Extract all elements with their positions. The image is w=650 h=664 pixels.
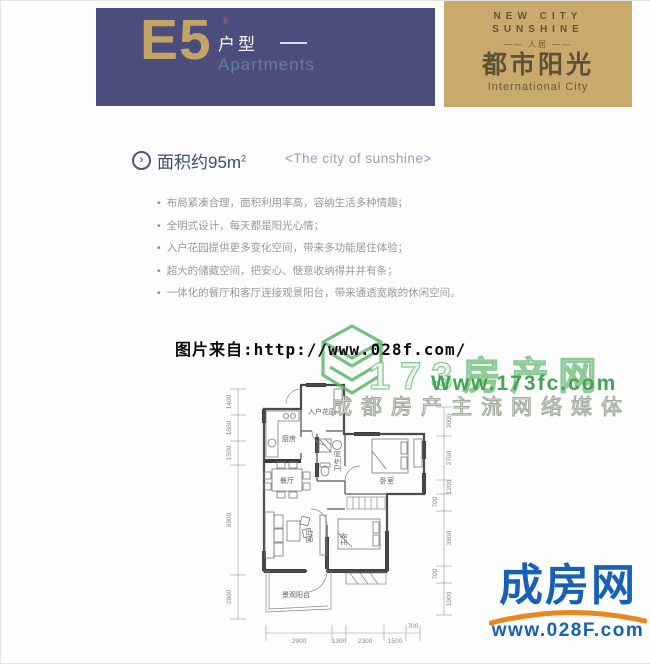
unit-type-label-en: Apartments xyxy=(218,55,315,75)
area-superscript: 2 xyxy=(241,153,246,163)
dim-left-2: 1500 xyxy=(226,445,233,460)
dim-left-3: 6900 xyxy=(226,512,233,527)
dimension-labels: 1400 1600 1500 6900 2800 3000 2700 1200 … xyxy=(226,394,453,645)
feature-bullet: 入户花园提供更多变化空间，带来多功能居住体验； xyxy=(157,237,477,260)
feature-bullet: 超大的储藏空间，把安心、惬意收纳得井井有条； xyxy=(157,260,477,283)
room-label-bathroom: 卫生间 xyxy=(333,451,342,472)
feature-bullet: 布局紧凑合理，面积利用率高，容纳生活多种情趣； xyxy=(157,192,477,215)
chevron-right-circle-icon: › xyxy=(132,151,151,170)
dim-left-0: 1400 xyxy=(226,394,233,409)
brand-name-en: International City xyxy=(444,81,632,93)
decor-dash xyxy=(280,42,307,44)
feature-bullet: 一体化的餐厅和客厅连接观景阳台，带来通透宽敞的休闲空间。 xyxy=(157,282,477,305)
dim-bottom-2: 2300 xyxy=(358,638,373,645)
brand-line3: —— 人居 —— xyxy=(444,39,632,50)
dim-right-1: 2700 xyxy=(446,450,453,465)
photo-source-watermark: 图片来自:http://www.028f.com/ xyxy=(175,336,466,360)
dim-bottom-3: 1500 xyxy=(388,638,403,645)
dim-bottom-0: 2900 xyxy=(292,638,307,645)
dim-bottom-1: 1300 xyxy=(332,638,347,645)
slogan-text: <The city of sunshine> xyxy=(285,151,432,166)
room-label-master-bedroom: 主卧 xyxy=(339,532,348,546)
header-banner: E5 ® 户型 Apartments xyxy=(96,8,435,106)
brand-block: NEW CITY SUNSHINE —— 人居 —— 都市阳光 Internat… xyxy=(444,1,632,107)
unit-type-code: E5 xyxy=(140,12,212,69)
brand-name-cn: 都市阳光 xyxy=(444,51,632,79)
dim-right-4: 3800 xyxy=(446,530,453,545)
room-label-bedroom: 卧室 xyxy=(380,476,394,485)
room-label-living: 客厅 xyxy=(305,529,314,543)
brand-line2: SUNSHINE xyxy=(444,23,632,36)
dim-bottom-4: 700 xyxy=(408,623,419,630)
watermark-site-url: Www.173fc.com xyxy=(431,372,617,396)
room-label-balcony: 景观阳台 xyxy=(282,590,310,599)
area-label: 面积约95m xyxy=(157,153,241,172)
room-label-kitchen: 厨房 xyxy=(282,434,296,443)
floor-plan: 入户花园 厨房 卫生间 卧室 餐厅 客厅 主卧 景观阳台 1400 1600 1 xyxy=(194,381,486,657)
dim-right-6: 1900 xyxy=(446,591,453,606)
site-logo-url: www.028F.com xyxy=(488,620,648,642)
brand-line1: NEW CITY xyxy=(444,10,632,23)
room-label-dining: 餐厅 xyxy=(280,476,294,485)
wardrobe xyxy=(347,497,385,509)
feature-bullet-list: 布局紧凑合理，面积利用率高，容纳生活多种情趣； 全明式设计，每天都是阳光心情； … xyxy=(157,192,477,305)
site-logo-name: 成房网 xyxy=(488,562,648,610)
site-logo-block: 成房网 www.028F.com xyxy=(488,562,648,642)
dim-right-2: 1200 xyxy=(446,479,453,494)
brochure-page: E5 ® 户型 Apartments NEW CITY SUNSHINE —— … xyxy=(0,0,650,664)
dim-left-1: 1600 xyxy=(226,420,233,435)
feature-bullet: 全明式设计，每天都是阳光心情； xyxy=(157,215,477,238)
area-text: 面积约95m2 xyxy=(157,148,246,173)
unit-type-label: 户型 xyxy=(218,30,258,55)
registered-mark: ® xyxy=(222,16,229,26)
dim-right-3: 700 xyxy=(432,496,439,507)
dim-right-5: 700 xyxy=(432,568,439,579)
dim-left-4: 2800 xyxy=(226,589,233,604)
